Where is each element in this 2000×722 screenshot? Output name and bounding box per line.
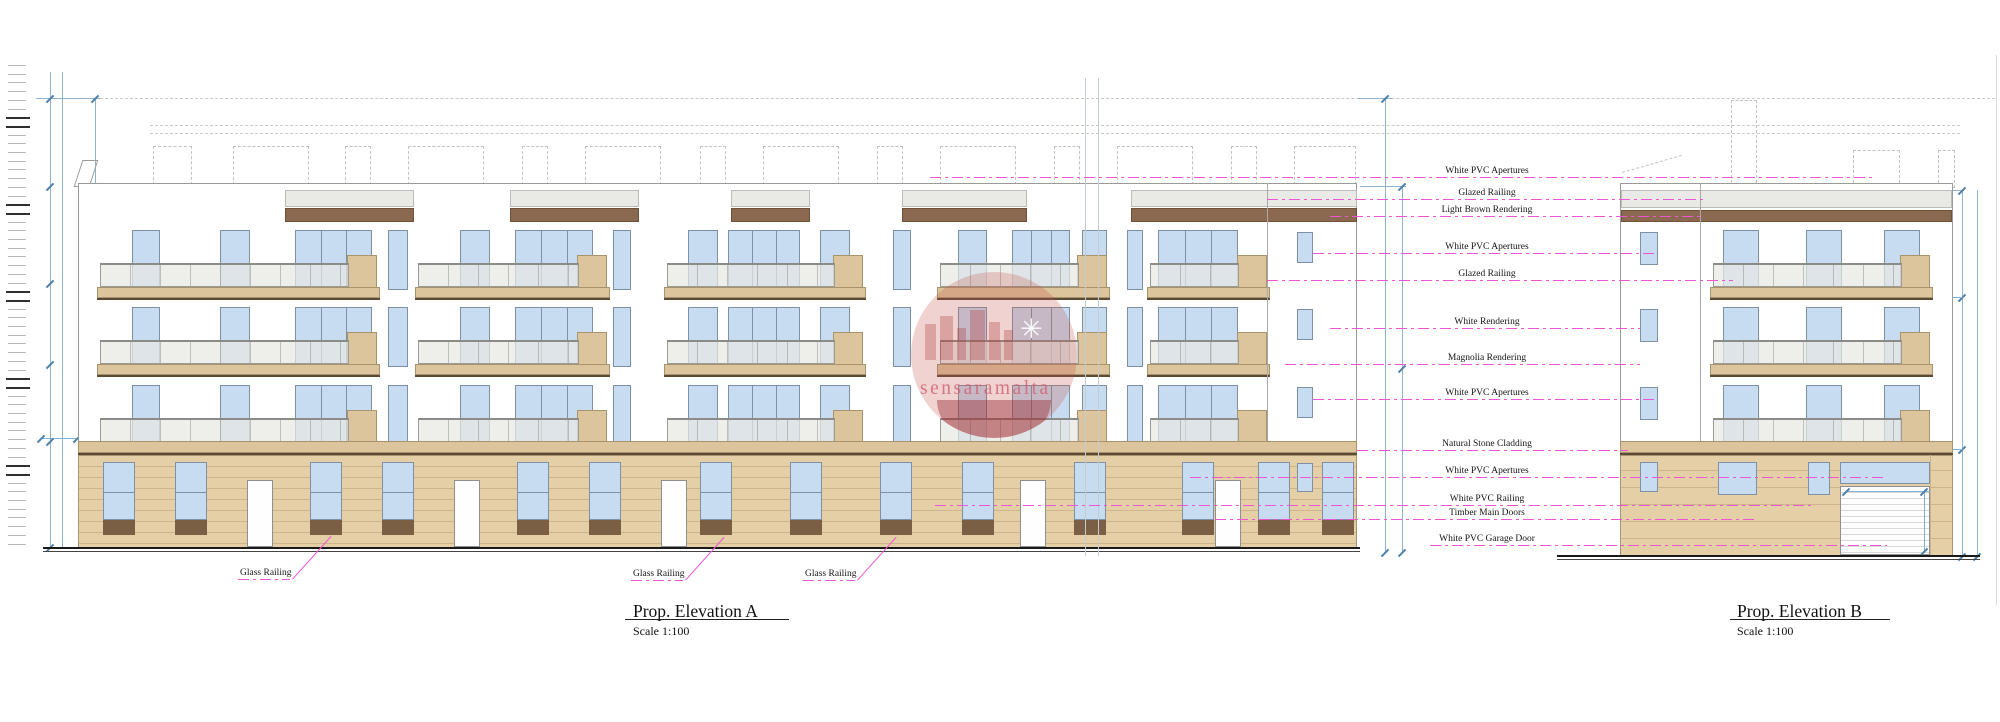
leader-line bbox=[1285, 364, 1640, 365]
leader-line bbox=[1330, 328, 1640, 329]
leader-line bbox=[1430, 545, 1887, 546]
annotation-label: White PVC Apertures bbox=[1445, 466, 1528, 476]
ground-annotation-label: Glass Railing bbox=[633, 569, 684, 579]
annotation-label: White PVC Apertures bbox=[1445, 166, 1528, 176]
annotation-layer: White PVC AperturesGlazed RailingLight B… bbox=[0, 0, 2000, 722]
leader-underline bbox=[631, 580, 683, 581]
leader-line bbox=[1267, 199, 1703, 200]
elevation-a-title-underline bbox=[625, 619, 789, 620]
annotation-label: Timber Main Doors bbox=[1449, 508, 1525, 518]
leader-line bbox=[930, 177, 1873, 178]
annotation-label: White Rendering bbox=[1454, 317, 1519, 327]
annotation-label: Glazed Railing bbox=[1458, 269, 1515, 279]
annotation-label: White PVC Apertures bbox=[1445, 242, 1528, 252]
leader-line bbox=[935, 505, 1813, 506]
leader-diagonal bbox=[685, 537, 725, 581]
leader-line bbox=[1215, 519, 1756, 520]
annotation-label: White PVC Railing bbox=[1450, 494, 1524, 504]
drawing-sheet: ✳ sensaramalta White PVC AperturesGlazed… bbox=[0, 0, 2000, 722]
leader-underline bbox=[803, 580, 855, 581]
annotation-label: White PVC Apertures bbox=[1445, 388, 1528, 398]
annotation-label: Natural Stone Cladding bbox=[1442, 439, 1532, 449]
leader-line bbox=[1330, 216, 1700, 217]
ground-annotation-label: Glass Railing bbox=[805, 569, 856, 579]
leader-line bbox=[1313, 253, 1658, 254]
leader-line bbox=[1190, 477, 1887, 478]
elevation-b-scale: Scale 1:100 bbox=[1737, 624, 1793, 639]
elevation-b-title-underline bbox=[1730, 619, 1890, 620]
leader-diagonal bbox=[857, 537, 897, 581]
annotation-label: Magnolia Rendering bbox=[1448, 353, 1526, 363]
ground-annotation-label: Glass Railing bbox=[240, 568, 291, 578]
elevation-a-scale: Scale 1:100 bbox=[633, 624, 689, 639]
annotation-label: White PVC Garage Door bbox=[1439, 534, 1535, 544]
leader-line bbox=[1357, 450, 1628, 451]
annotation-label: Light Brown Rendering bbox=[1442, 205, 1533, 215]
annotation-label: Glazed Railing bbox=[1458, 188, 1515, 198]
leader-underline bbox=[238, 579, 290, 580]
leader-line bbox=[1267, 280, 1733, 281]
leader-diagonal bbox=[292, 536, 332, 580]
leader-line bbox=[1313, 399, 1658, 400]
